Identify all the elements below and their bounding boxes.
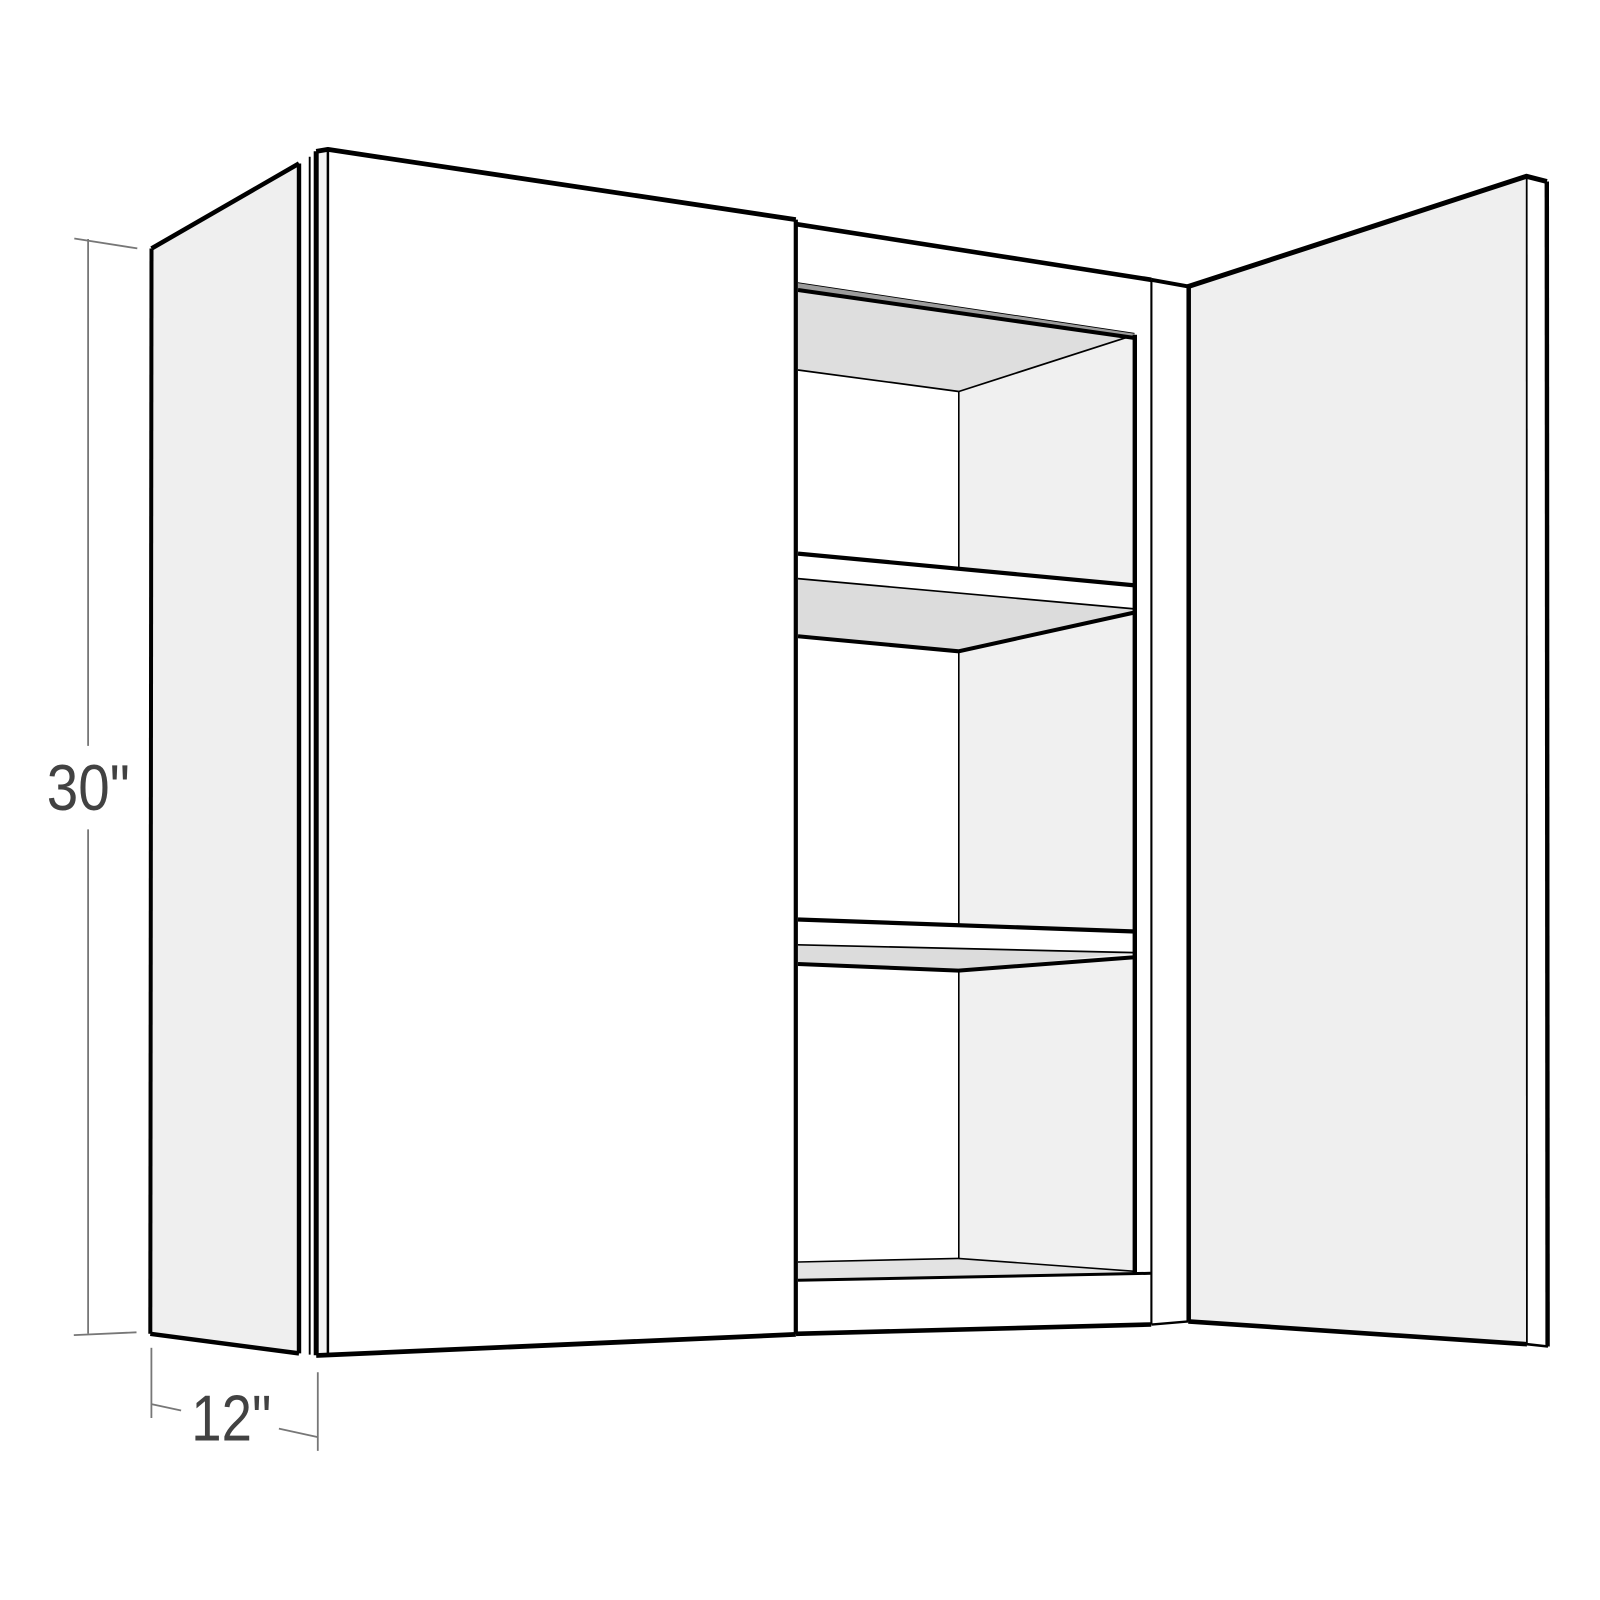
svg-text:12": 12" bbox=[191, 1382, 271, 1455]
svg-text:30": 30" bbox=[47, 751, 130, 824]
